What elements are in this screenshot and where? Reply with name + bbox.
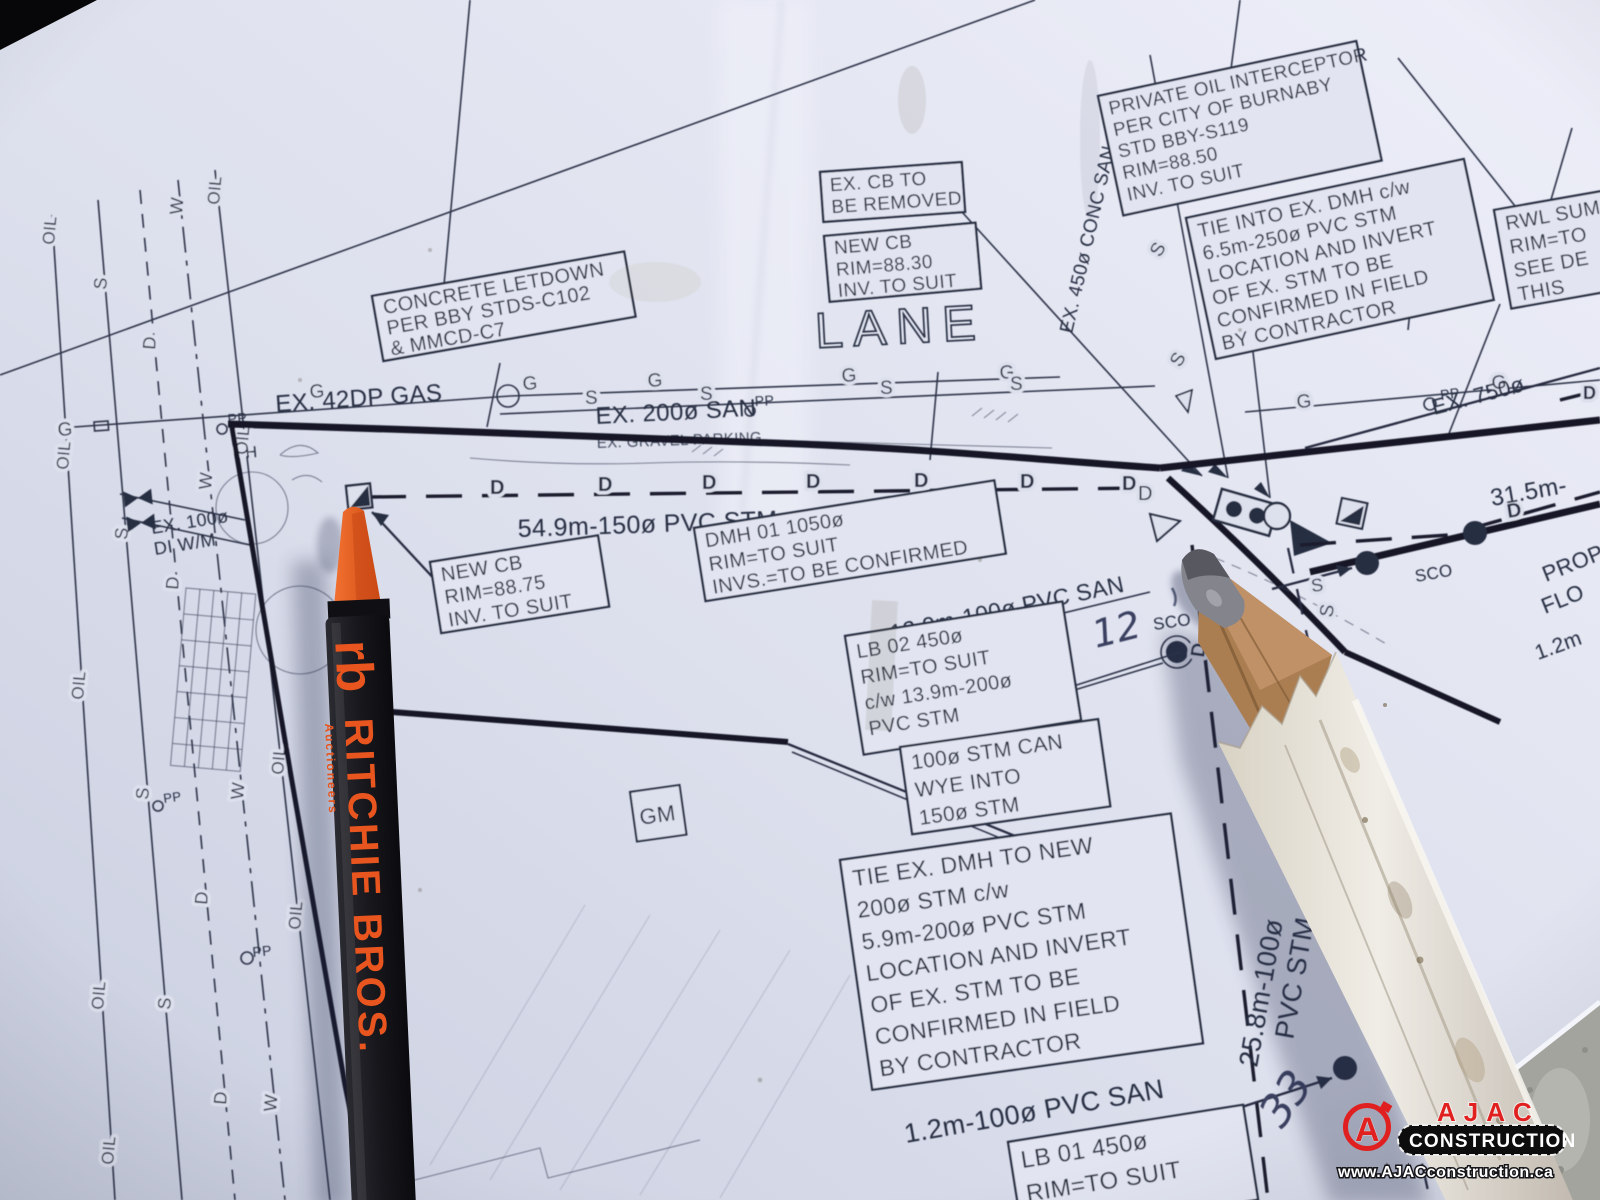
marker-logo-initials: rb — [323, 639, 383, 694]
ajac-name: AJAC — [1437, 1097, 1540, 1127]
ajac-monogram: A — [1355, 1111, 1380, 1149]
site-plan-photo: OIL OIL OIL OIL OIL OIL OIL OIL OIL S S … — [0, 0, 1600, 1200]
site-plan-canvas: OIL OIL OIL OIL OIL OIL OIL OIL OIL S S … — [0, 0, 1600, 1200]
ajac-url: www.AJACconstruction.ca — [1337, 1164, 1553, 1181]
ajac-banner: CONSTRUCTION — [1409, 1131, 1576, 1152]
